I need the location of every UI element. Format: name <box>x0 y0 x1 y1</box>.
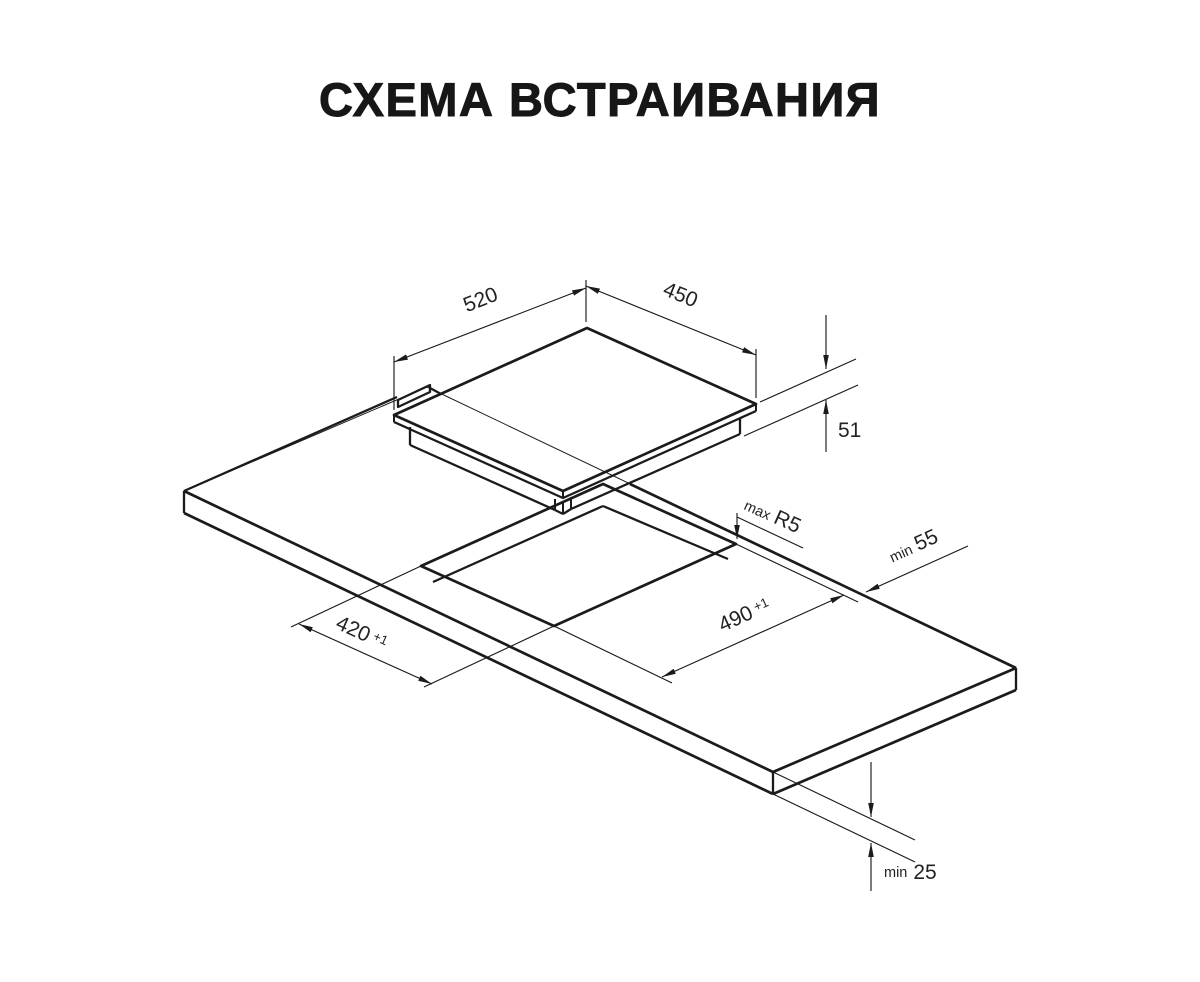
hob-junction-box <box>398 385 430 407</box>
corner-radius-label: maxR5 <box>741 493 804 538</box>
dim-hob-width: 520 <box>394 280 586 410</box>
edge-clearance-label: min55 <box>885 525 942 567</box>
hob-drawing <box>394 328 756 514</box>
dim-countertop-thickness: min25 <box>773 762 937 891</box>
hob-depth-label: 450 <box>660 278 701 312</box>
dim-hob-height: 51 <box>744 315 861 452</box>
leader-edge-clearance: min55 <box>866 525 968 592</box>
hob-width-label: 520 <box>460 283 501 317</box>
countertop-drawing <box>184 387 1016 794</box>
cutout-width-label: 420+1 <box>332 612 391 655</box>
installation-diagram: 420+1 490+1 maxR5 min55 min25 <box>0 0 1200 982</box>
dim-cutout-depth: 490+1 <box>554 544 858 683</box>
installation-scheme-page: СХЕМА ВСТРАИВАНИЯ <box>0 0 1200 982</box>
countertop-thickness-label: min25 <box>884 861 937 884</box>
hob-height-label: 51 <box>838 419 861 442</box>
